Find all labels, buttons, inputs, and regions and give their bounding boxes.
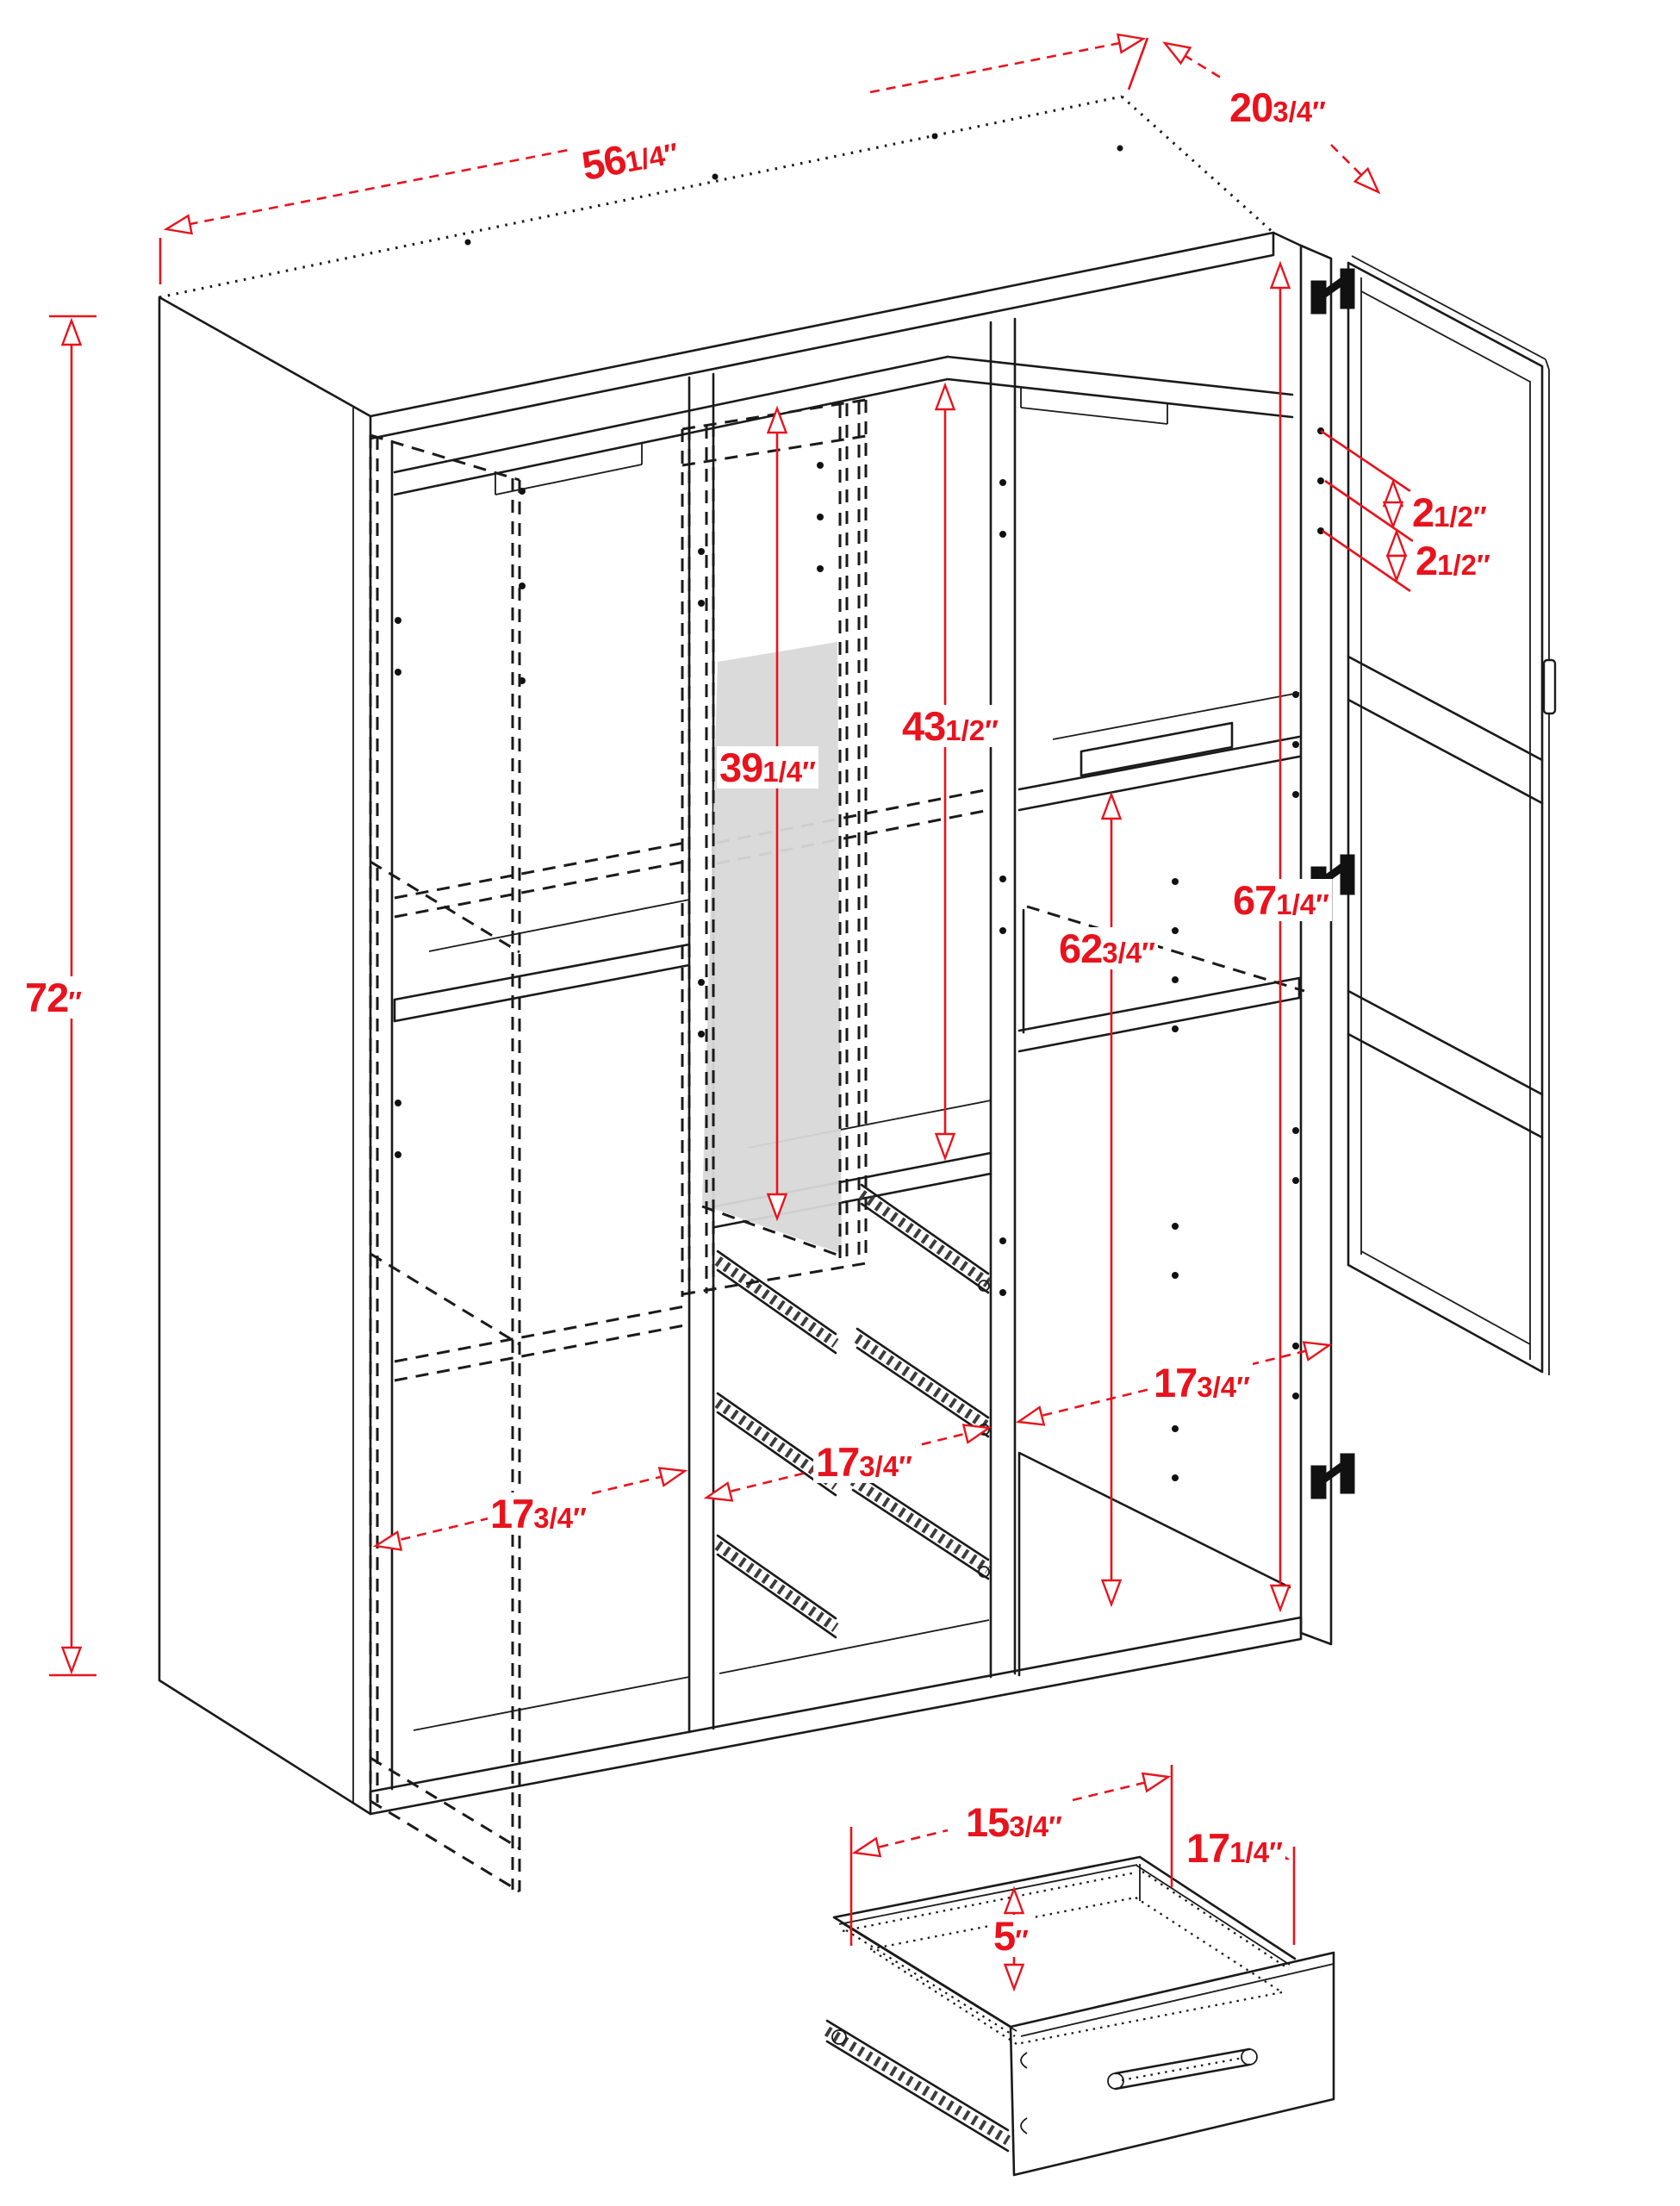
label-right-shelf-height: 623/4″ [1056,927,1158,969]
dim-unit: ″ [573,1502,587,1534]
slide-rail [853,1471,989,1579]
dim-fraction: 3/4 [533,1502,573,1534]
dim-fraction: 1/2 [1434,501,1473,533]
dim-unit: ″ [1015,1924,1029,1956]
dim-unit: ″ [1316,888,1329,920]
dim-unit: ″ [985,714,999,746]
dim-fraction: 1/2 [945,714,985,746]
left-section-shelf [395,842,689,1380]
dim-value: 2 [1412,489,1434,535]
label-left-section-width: 173/4″ [488,1492,589,1535]
dim-value: 67 [1233,877,1276,923]
dim-value: 56 [578,136,629,190]
drawer-detail [827,1857,1334,2175]
label-overall-depth: 203/4″ [1227,86,1328,128]
dim-middle-height-43-1-2 [936,385,955,1158]
slide-rail [718,1536,836,1637]
dim-fraction: 1/4 [1229,1836,1269,1868]
dim-fraction: 3/4 [1197,1371,1236,1403]
label-middle-section-width: 173/4″ [813,1441,915,1483]
door-handle [1544,660,1555,714]
dim-fraction: 1/4 [762,756,802,788]
dim-value: 72 [25,975,68,1020]
slide-rail [862,1185,989,1293]
label-overall-height: 72″ [22,976,84,1019]
dim-value: 5 [993,1913,1015,1959]
diagram-canvas [0,0,1680,2206]
dim-fraction: 1/4 [1276,888,1316,920]
label-hole-spacing-lower: 21/2″ [1413,539,1493,582]
label-mirror-height: 391/4″ [717,746,818,788]
dim-unit: ″ [1236,1371,1250,1403]
dim-value: 62 [1059,925,1102,971]
dim-value: 39 [719,745,762,790]
dim-value: 17 [816,1439,859,1485]
wardrobe-dimension-diagram: 561/4″ 203/4″ 72″ 21/2″ 21/2″ 391/4″ 431… [0,0,1680,2206]
hinge-icon [1311,1454,1354,1499]
dim-fraction: 1/4 [623,140,668,178]
label-drawer-depth: 171/4″ [1184,1827,1285,1869]
dim-unit: ″ [1269,1836,1283,1868]
dim-unit: ″ [802,756,816,788]
dim-right-interior-67-1-4 [1272,264,1290,1610]
label-drawer-height: 5″ [991,1915,1031,1957]
dim-value: 2 [1416,538,1437,583]
dim-value: 17 [1186,1825,1229,1871]
drawer-slide-rails [718,1185,989,1637]
dim-fraction: 3/4 [1102,937,1142,969]
right-section-shelves [1019,693,1304,1051]
dim-fraction: 3/4 [1009,1810,1048,1842]
label-hole-spacing-upper: 21/2″ [1409,491,1490,533]
dim-unit: ″ [1142,937,1155,969]
dim-hole-spacing [1321,431,1413,591]
dim-unit: ″ [1473,501,1487,533]
dim-fraction: 3/4 [1272,96,1312,128]
interior-partitions [392,319,1292,1789]
dim-value: 15 [966,1799,1009,1845]
label-right-interior-height: 671/4″ [1230,879,1332,921]
slide-rail [718,1251,836,1353]
slide-rail [857,1329,989,1436]
drawer-handle [1108,2049,1257,2089]
dim-value: 20 [1229,84,1272,130]
hinge-icon [1311,269,1354,314]
dim-right-shelf-62-3-4 [1103,795,1121,1605]
dim-fraction: 3/4 [859,1450,899,1482]
right-door-open [1311,256,1555,1499]
dim-unit: ″ [68,986,82,1018]
dim-unit: ″ [1048,1810,1062,1842]
dim-value: 17 [1154,1360,1197,1405]
dim-value: 17 [490,1491,533,1536]
label-right-section-width: 173/4″ [1151,1362,1253,1404]
drawer-slide-rail [827,2021,1008,2151]
label-drawer-width: 153/4″ [963,1801,1065,1843]
label-middle-interior-height: 431/2″ [899,705,1001,747]
mirror-door-open-dashed [682,400,866,1297]
dim-value: 43 [902,703,945,749]
dim-unit: ″ [1312,96,1326,128]
dim-unit: ″ [1477,549,1490,581]
mirror-panel [702,642,842,1254]
dim-unit: ″ [899,1450,912,1482]
dim-fraction: 1/2 [1437,549,1477,581]
